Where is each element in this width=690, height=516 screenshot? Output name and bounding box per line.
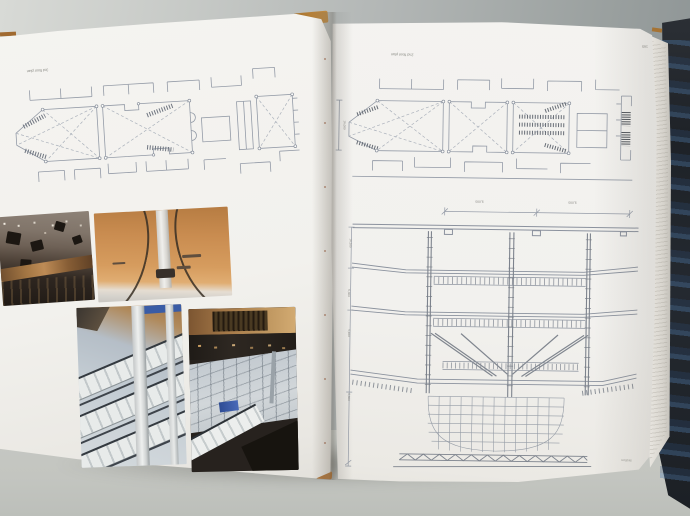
arched-rib-left — [94, 207, 163, 303]
right-plan-caption: 2nd floor plan — [391, 52, 414, 56]
section-caption: section — [621, 458, 632, 462]
plan-dimension-left: 16,000 — [343, 120, 346, 129]
column-fixture — [156, 268, 175, 278]
hanging-object — [54, 221, 66, 232]
hanging-object — [6, 231, 22, 245]
storefront-glints — [198, 345, 201, 347]
atrium-ceiling-interior-photo — [0, 211, 95, 306]
right-floor-plan-drawing — [332, 56, 652, 186]
dark-ceiling-wedge — [76, 307, 110, 332]
section-dimension-left-3: 5,400 — [347, 329, 350, 337]
page-number: 165 — [642, 44, 648, 48]
section-dimension-top-right: 9,000 — [568, 200, 576, 203]
section-dimension-left-1: 16,300 — [349, 238, 352, 247]
balcony-column-interior-photo — [76, 304, 187, 468]
building-section-drawing — [341, 192, 645, 474]
section-dimension-left-4: 8,300 — [347, 393, 350, 401]
wood-slat-panel — [212, 311, 268, 332]
section-dimension-left-2: 6,300 — [347, 289, 350, 297]
hanging-object — [30, 239, 44, 252]
hanging-object — [72, 234, 83, 245]
section-dimension-top-left: 9,000 — [475, 199, 483, 202]
left-floor-plan-drawing — [2, 49, 317, 200]
ceiling-lights — [3, 223, 5, 225]
orange-ceiling-arched-ribs-photo — [94, 207, 232, 303]
atrium-levels-overview-photo — [188, 307, 298, 472]
binding-stitch-dots — [324, 58, 326, 454]
